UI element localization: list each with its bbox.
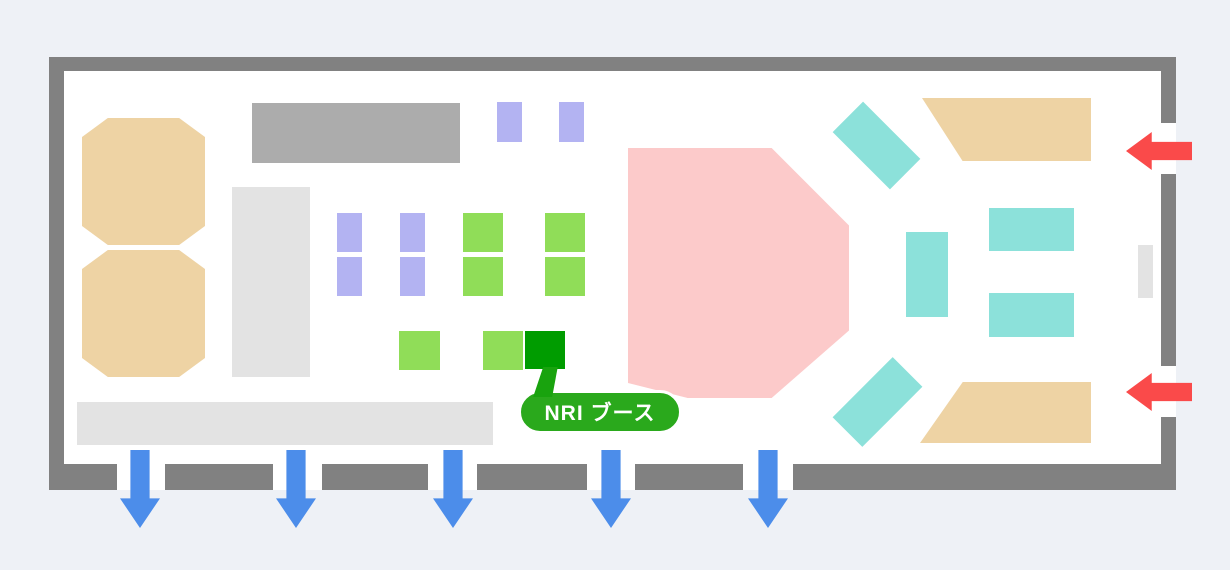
bottom-wall-segment-5	[635, 464, 743, 490]
lightgray-pillar	[1138, 245, 1153, 298]
purple-booth-row1-col2	[400, 213, 425, 252]
bottom-wall-segment-6	[793, 464, 1176, 490]
green-booth-row1-col2	[545, 213, 585, 252]
right-wall-segment-2	[1161, 174, 1176, 366]
teal-booth-vertical	[906, 232, 948, 317]
nri-booth-floor-map: NRI ブース	[0, 0, 1230, 570]
green-booth-small-2	[483, 331, 523, 370]
teal-booth-horizontal-1	[989, 208, 1074, 251]
right-wall-segment-1	[1161, 57, 1176, 123]
purple-booth-top-2	[559, 102, 584, 142]
teal-booth-horizontal-2	[989, 293, 1074, 337]
purple-booth-row2-col2	[400, 257, 425, 296]
gray-booth-block	[252, 103, 460, 163]
tan-booth-octagon-1	[82, 118, 205, 245]
callout-label: NRI ブース	[545, 397, 656, 427]
purple-booth-row2-col1	[337, 257, 362, 296]
lightgray-zone-bottom	[77, 402, 493, 445]
green-booth-row1-col1	[463, 213, 503, 252]
top-wall	[49, 57, 1176, 71]
nri-booth	[525, 331, 565, 369]
tan-booth-octagon-2	[82, 250, 205, 377]
bottom-wall-segment-4	[477, 464, 587, 490]
green-booth-row2-col1	[463, 257, 503, 296]
green-booth-small-1	[399, 331, 440, 370]
green-booth-row2-col2	[545, 257, 585, 296]
purple-booth-top-1	[497, 102, 522, 142]
bottom-wall-segment-1	[49, 464, 117, 490]
bottom-wall-segment-2	[165, 464, 273, 490]
purple-booth-row1-col1	[337, 213, 362, 252]
lightgray-zone-vertical	[232, 187, 310, 377]
bottom-wall-segment-3	[322, 464, 428, 490]
left-wall	[49, 57, 64, 490]
